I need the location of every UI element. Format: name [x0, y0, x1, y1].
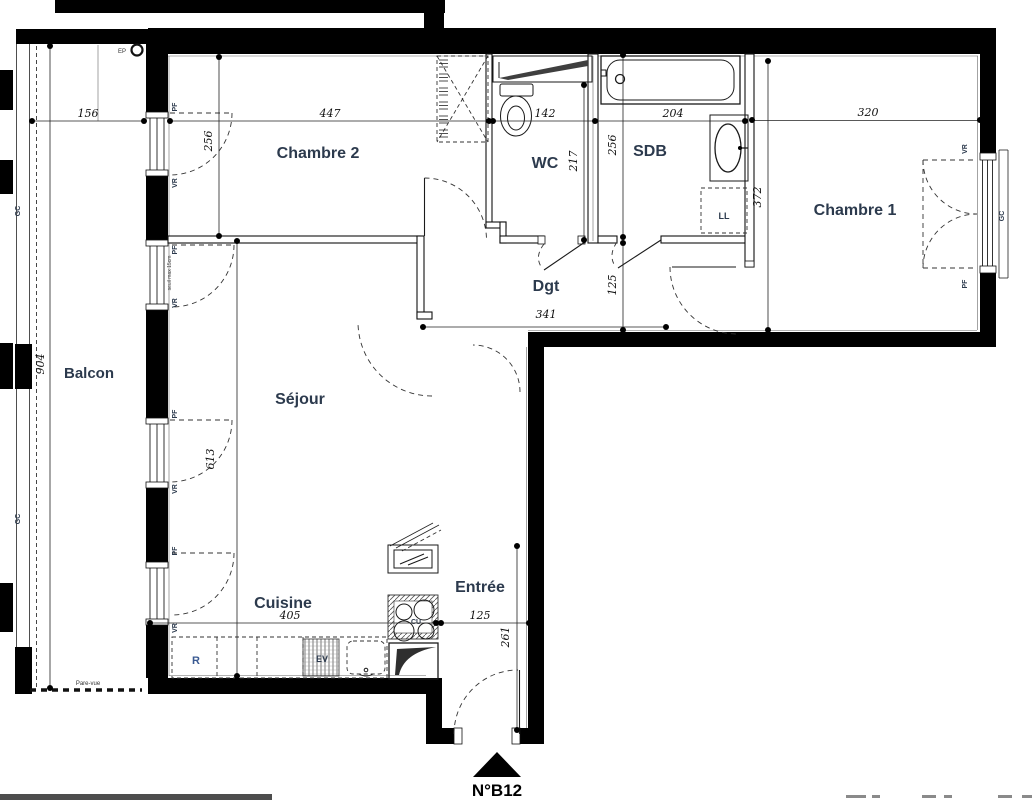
- dim-wc-width: 142: [535, 107, 556, 120]
- door-entrance: [454, 670, 520, 744]
- door-wc: [538, 242, 585, 270]
- dim-entree-height: 261: [499, 627, 512, 649]
- dim-dgt-height: 125: [606, 275, 619, 296]
- dim-chambre2-width: 447: [319, 107, 341, 120]
- window-cuisine: [146, 562, 168, 625]
- window-sejour-2: [146, 418, 168, 488]
- room-labels: Chambre 2 WC SDB Chambre 1 Balcon Séjour…: [64, 143, 896, 612]
- floor-plan-drawing: LL R EV: [0, 0, 1034, 800]
- tag-vr: VR: [172, 484, 179, 494]
- washing-machine-label: LL: [719, 211, 730, 221]
- tag-vr: VR: [962, 144, 969, 154]
- bathtub: [601, 56, 740, 104]
- kitchen-sink: [347, 641, 385, 674]
- tag-pf: PF: [962, 279, 969, 289]
- label-dgt: Dgt: [533, 278, 560, 295]
- door-french-window-chambre1: [923, 160, 977, 268]
- tag-ep: EP: [118, 49, 126, 55]
- unit-number: N°B12: [472, 781, 522, 800]
- dim-sdb-height: 256: [606, 135, 619, 157]
- tag-pf: PF: [172, 245, 179, 255]
- door-chambre1: [670, 267, 737, 334]
- label-chambre2: Chambre 2: [277, 145, 360, 162]
- dim-entree-width: 125: [470, 609, 491, 622]
- label-cuisine: Cuisine: [254, 595, 312, 612]
- door-chambre2: [425, 178, 487, 240]
- tag-pf: PF: [172, 409, 179, 419]
- fridge-label: R: [192, 655, 200, 667]
- label-wc: WC: [532, 155, 559, 172]
- tag-pf: PF: [172, 546, 179, 556]
- door-swing-window-cuisine: [172, 553, 234, 615]
- sink-faucet: [364, 668, 368, 672]
- label-sdb: SDB: [633, 143, 667, 160]
- tag-pare-vue: Pare-vue: [76, 681, 101, 687]
- label-sejour: Séjour: [275, 391, 325, 408]
- dim-chambre1-width: 320: [858, 106, 879, 119]
- dim-dgt-width: 341: [536, 308, 557, 321]
- sink-label: EV: [316, 654, 328, 664]
- tag-vr: VR: [172, 298, 179, 308]
- facade-windows: [146, 112, 1008, 625]
- dim-balcon-width: 156: [78, 107, 99, 120]
- dim-chambre1-height: 372: [751, 187, 764, 208]
- floor-plan: LL R EV: [0, 0, 1034, 800]
- door-swing-window-sejour2: [170, 420, 232, 482]
- tag-gc: GC: [999, 211, 1006, 222]
- tag-vr: VR: [172, 178, 179, 188]
- tag-vr: VR: [172, 623, 179, 633]
- wc-washbasin: [499, 60, 588, 80]
- oven-detail: [395, 647, 436, 675]
- dim-sejour-height: 613: [204, 449, 217, 470]
- label-entree: Entrée: [455, 579, 505, 596]
- sdb-washbasin: [715, 124, 741, 172]
- tag-gc: GC: [15, 206, 22, 217]
- kitchen-column: CU: [388, 523, 441, 679]
- entrance-marker: N°B12: [472, 752, 522, 800]
- partitions: [168, 54, 754, 319]
- window-chambre2: [146, 112, 168, 176]
- window-sejour-1: [146, 240, 168, 310]
- dim-balcon-height: 904: [34, 354, 47, 375]
- tag-pf: PF: [172, 102, 179, 112]
- entrance-arrow-icon: [473, 752, 521, 777]
- label-balcon: Balcon: [64, 365, 114, 382]
- duct-closet: [437, 56, 488, 142]
- dim-sdb-width: 204: [662, 107, 684, 120]
- dim-wc-height: 217: [567, 151, 580, 173]
- toilet-tank: [500, 84, 533, 96]
- door-sejour-passage: [358, 322, 520, 396]
- door-swing-window-chambre2: [170, 113, 232, 175]
- ep-downpipe-icon: [132, 45, 143, 56]
- hob-label: CU: [411, 619, 421, 626]
- wc-fixtures: [493, 56, 592, 136]
- kitchen-counter: [172, 637, 387, 678]
- tag-gc: GC: [15, 514, 22, 525]
- dim-chambre2-height: 256: [202, 131, 215, 153]
- label-chambre1: Chambre 1: [814, 202, 897, 219]
- door-swing-window-sejour1: [172, 245, 234, 307]
- door-sdb: [612, 240, 661, 268]
- tag-seuil-note: seuil max 15cm: [167, 256, 173, 291]
